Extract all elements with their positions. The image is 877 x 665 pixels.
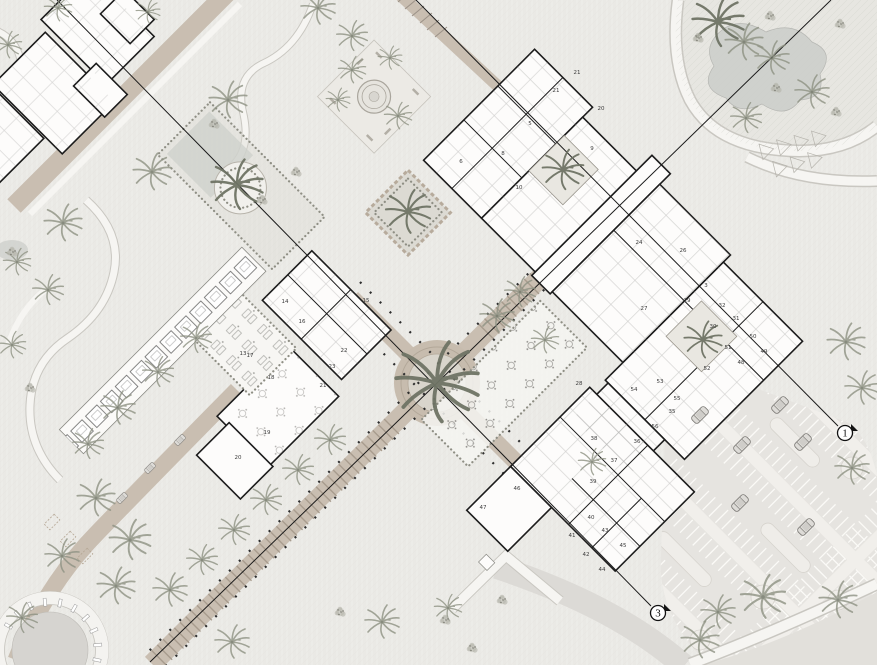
room-number-label: 19 (264, 430, 271, 436)
room-number-label: 20 (598, 106, 605, 112)
marker-number: 3 (655, 608, 661, 620)
landscape-island (676, 0, 877, 151)
room-number-label: 20 (235, 455, 242, 461)
room-number-label: 21 (574, 70, 581, 76)
room-number-label: 35 (669, 409, 676, 415)
room-number-label: 14 (282, 299, 289, 305)
room-number-label: 28 (576, 381, 583, 387)
room-number-label: 41 (569, 533, 576, 539)
room-number-label: 39 (590, 479, 597, 485)
room-number-label: 32 (719, 303, 726, 309)
room-number-label: 27 (641, 306, 648, 312)
room-number-label: 50 (750, 334, 757, 340)
room-number-label: 10 (516, 185, 523, 191)
room-number-label: 49 (761, 349, 768, 355)
room-number-label: 46 (514, 486, 521, 492)
room-number-label: 9 (590, 146, 594, 152)
room-number-label: 40 (588, 515, 595, 521)
room-number-label: 5 (528, 121, 532, 127)
room-number-label: 43 (602, 528, 609, 534)
marker-number: 1 (842, 428, 848, 440)
sun-lounger-icon (43, 598, 47, 606)
room-number-label: 47 (480, 505, 487, 511)
room-number-label: 38 (591, 436, 598, 442)
room-number-label: 23 (329, 364, 336, 370)
room-number-label: 51 (725, 345, 732, 351)
room-number-label: 54 (631, 387, 638, 393)
room-number-label: 6 (459, 159, 463, 165)
architectural-site-plan: 2121205986102426329273031325051494852535… (0, 0, 877, 665)
room-number-label: 21 (553, 88, 560, 94)
room-number-label: 53 (657, 379, 664, 385)
room-number-label: 26 (680, 248, 687, 254)
room-number-label: 17 (247, 353, 254, 359)
room-number-label: 8 (501, 151, 505, 157)
room-number-label: 24 (636, 240, 643, 246)
room-number-label: 56 (652, 424, 659, 430)
room-number-label: 18 (268, 375, 275, 381)
room-number-label: 16 (299, 319, 306, 325)
room-number-label: 31 (733, 316, 740, 322)
room-number-label: 21 (320, 383, 327, 389)
site-plan-canvas: 2121205986102426329273031325051494852535… (0, 0, 877, 665)
room-number-label: 36 (634, 439, 641, 445)
room-number-label: 45 (620, 543, 627, 549)
room-number-label: 44 (599, 567, 606, 573)
room-number-label: 52 (704, 366, 711, 372)
room-number-label: 30 (710, 324, 717, 330)
room-number-label: 55 (674, 396, 681, 402)
room-number-label: 15 (363, 298, 370, 304)
room-number-label: 29 (684, 298, 691, 304)
room-number-label: 42 (583, 552, 590, 558)
room-number-label: 22 (341, 348, 348, 354)
room-number-label: 3 (704, 283, 708, 289)
room-number-label: 37 (611, 458, 618, 464)
sun-lounger-icon (94, 643, 102, 647)
room-number-label: 48 (738, 360, 745, 366)
